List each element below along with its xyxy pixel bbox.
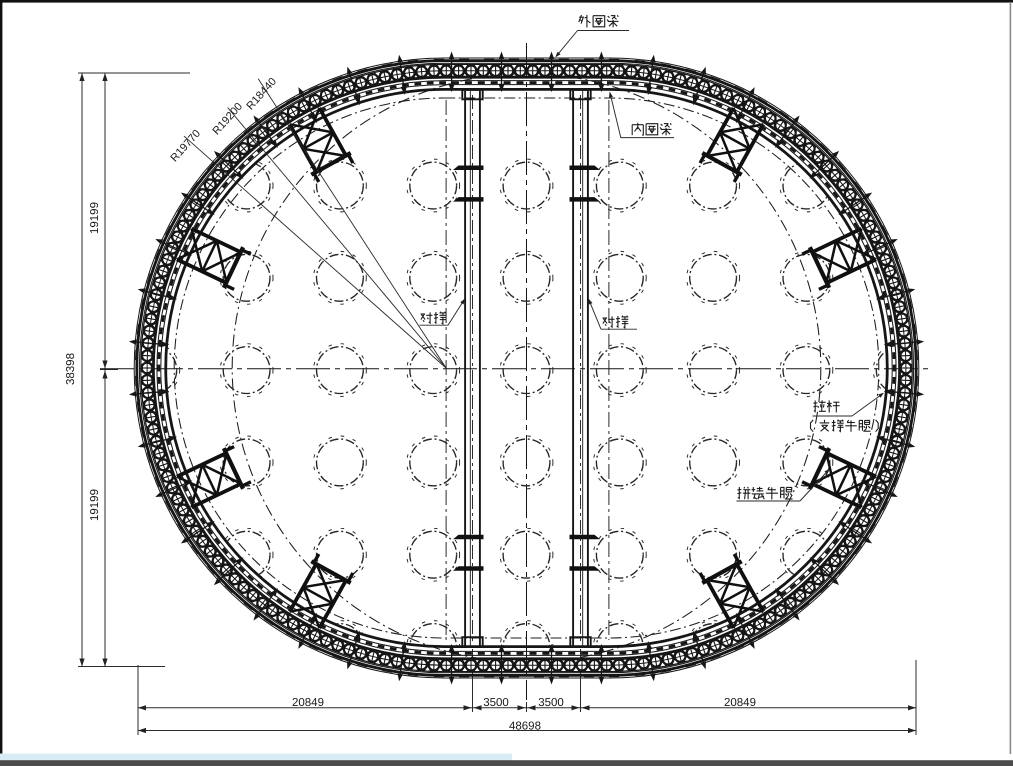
svg-text:19199: 19199	[89, 202, 101, 234]
svg-text:19199: 19199	[89, 489, 101, 521]
svg-text:20849: 20849	[292, 697, 324, 709]
svg-text:3500: 3500	[538, 697, 564, 709]
svg-text:20849: 20849	[724, 697, 756, 709]
svg-text:3500: 3500	[483, 697, 509, 709]
svg-text:38398: 38398	[65, 353, 77, 385]
svg-text:48698: 48698	[509, 720, 541, 732]
